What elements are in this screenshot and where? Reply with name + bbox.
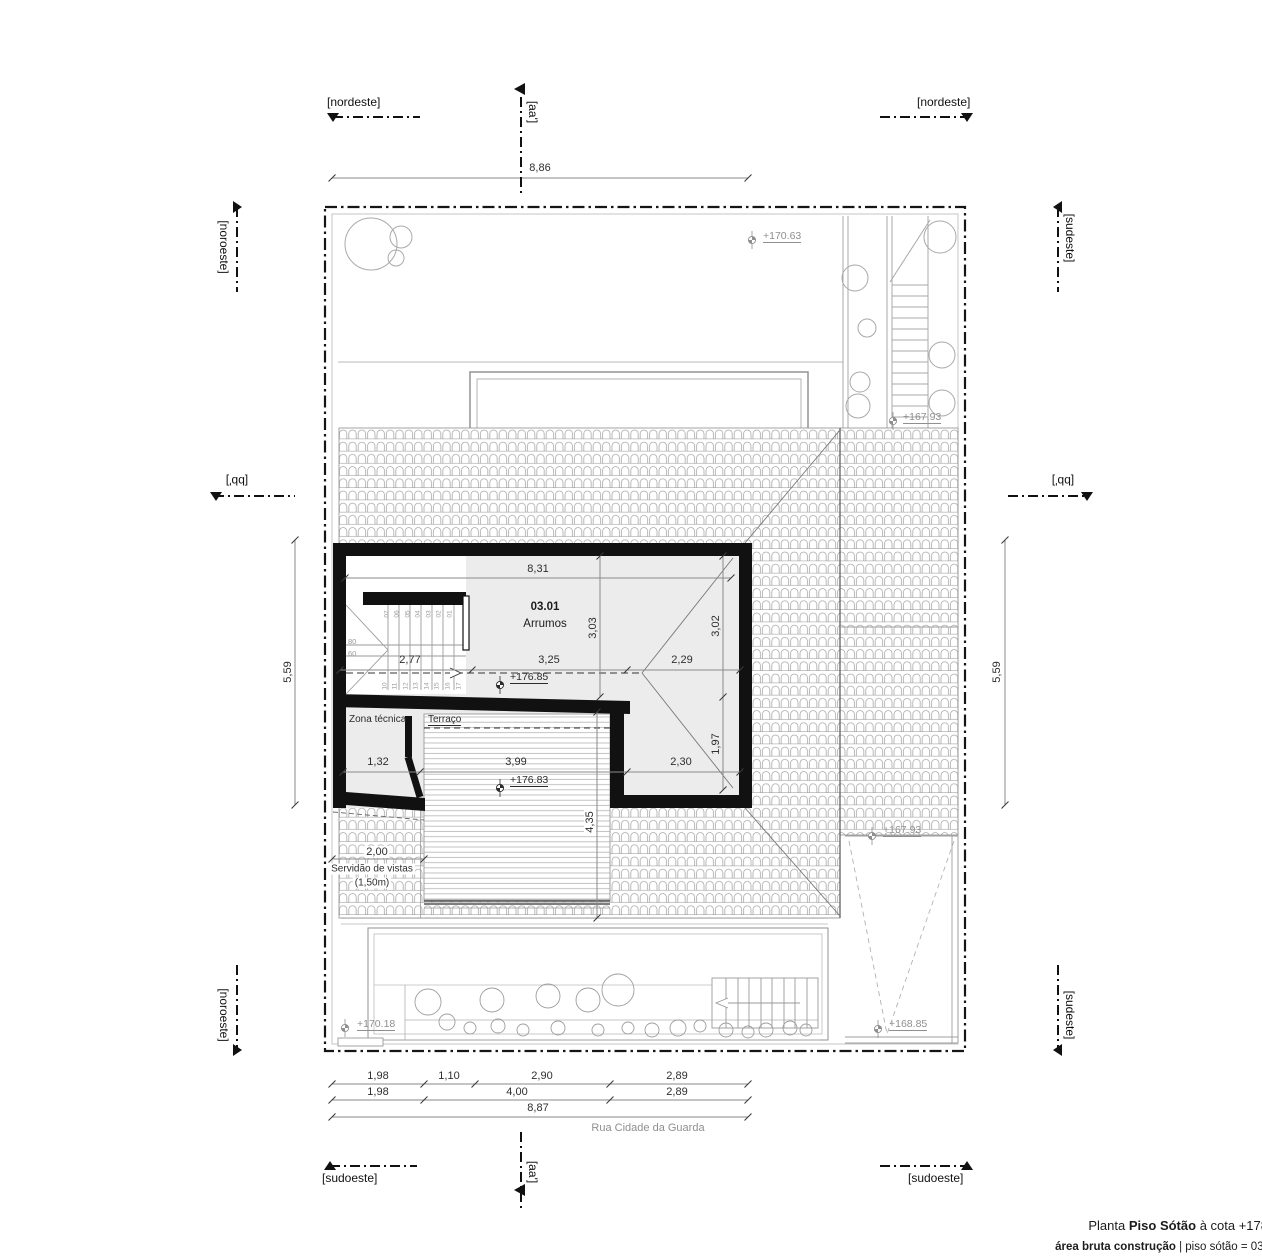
floor-plan-drawing: [0, 0, 1262, 1256]
terrace-deck: [424, 714, 610, 900]
door-leaf: [463, 596, 469, 650]
lower-courtyard: [338, 918, 828, 1046]
garden-trees: [345, 218, 412, 270]
exterior-stair-upper: [842, 216, 956, 428]
entrance-stair: [712, 978, 818, 1028]
roof-hatch-right: [840, 428, 958, 835]
floor-plan-page: { "drawing": { "title": { "prefix": "Pla…: [0, 0, 1262, 1256]
ramp: [845, 836, 958, 1043]
